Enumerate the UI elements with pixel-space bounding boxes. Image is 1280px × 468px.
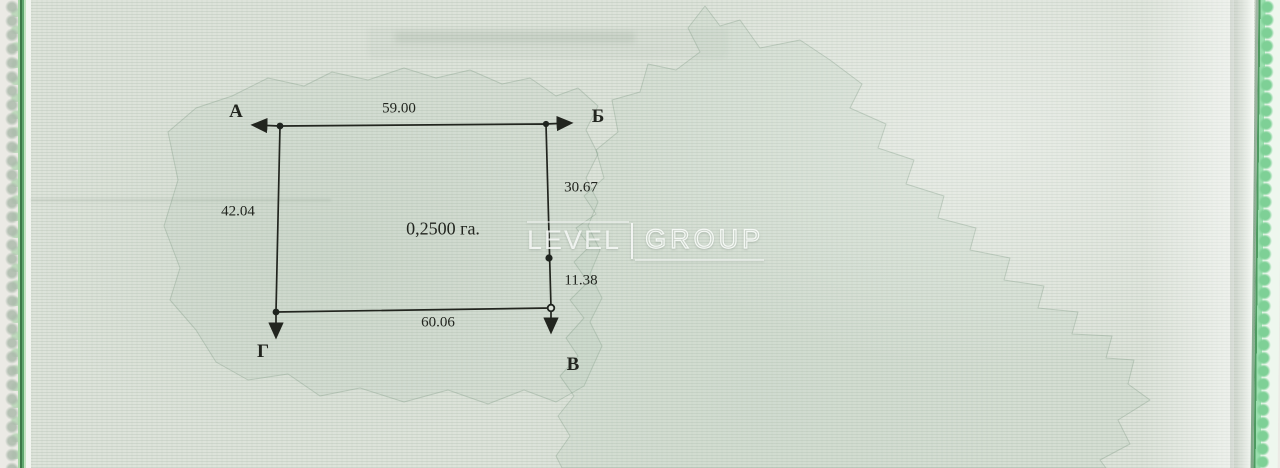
length-top: 59.00	[382, 101, 416, 118]
scanned-land-act-page: А Б В Г 59.00 30.67 42.04 11.38 60.06 0,…	[0, 0, 1280, 468]
right-deckle-edge	[1254, 0, 1280, 468]
corner-label-b: Б	[592, 106, 605, 128]
corner-label-v: В	[567, 354, 580, 376]
length-left: 42.04	[221, 204, 255, 221]
watermark-group-text: GROUP	[635, 220, 764, 261]
watermark-level-text: LEVEL	[527, 221, 629, 260]
length-bottom: 60.06	[421, 315, 455, 332]
area-label: 0,2500 га.	[406, 219, 480, 240]
length-right-lower: 11.38	[564, 273, 597, 290]
faded-print-artifact	[395, 32, 635, 43]
left-green-border	[18, 0, 26, 468]
length-right-upper: 30.67	[564, 180, 598, 197]
corner-label-g: Г	[257, 341, 269, 363]
level-group-watermark: LEVEL GROUP	[527, 220, 764, 261]
corner-label-a: А	[229, 101, 243, 123]
paper-curvature-highlight	[1142, 0, 1234, 468]
watermark-divider	[631, 223, 633, 259]
paper-crease	[31, 199, 331, 201]
